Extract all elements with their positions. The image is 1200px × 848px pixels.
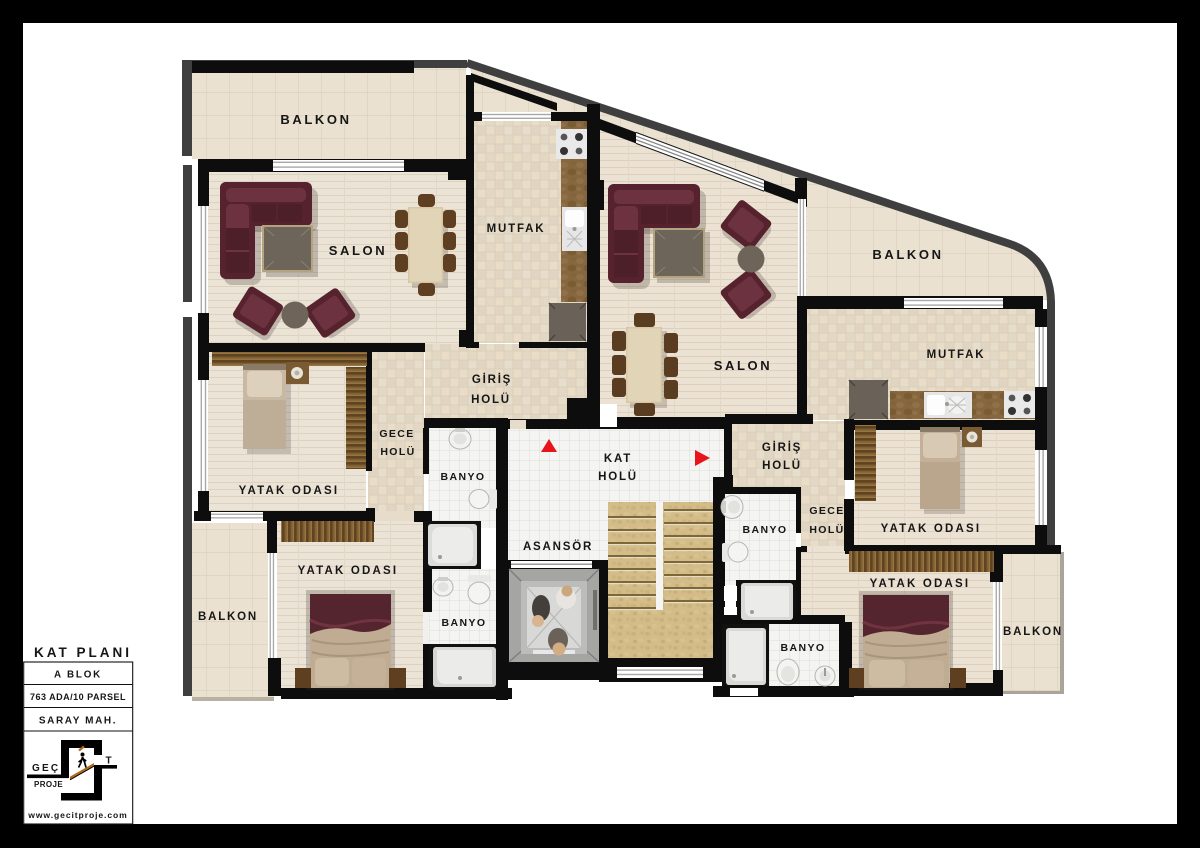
svg-text:BALKON: BALKON — [280, 112, 351, 127]
svg-text:BALKON: BALKON — [872, 247, 943, 262]
svg-text:KAT: KAT — [604, 453, 632, 465]
svg-text:GECE: GECE — [809, 505, 844, 517]
svg-text:GECE: GECE — [379, 428, 414, 440]
svg-text:SALON: SALON — [329, 243, 388, 258]
svg-text:GEÇ: GEÇ — [32, 763, 60, 774]
svg-text:BANYO: BANYO — [441, 471, 486, 483]
svg-text:HOLÜ: HOLÜ — [809, 523, 844, 536]
svg-text:HOLÜ: HOLÜ — [762, 459, 802, 472]
svg-text:YATAK ODASI: YATAK ODASI — [881, 523, 982, 535]
svg-text:GİRİŞ: GİRİŞ — [472, 373, 512, 386]
svg-text:YATAK ODASI: YATAK ODASI — [870, 578, 971, 590]
svg-text:GİRİŞ: GİRİŞ — [762, 441, 802, 454]
svg-text:A BLOK: A BLOK — [54, 670, 102, 681]
svg-text:MUTFAK: MUTFAK — [487, 223, 546, 235]
svg-text:YATAK ODASI: YATAK ODASI — [239, 485, 340, 497]
svg-text:SALON: SALON — [714, 358, 773, 373]
svg-text:PROJE: PROJE — [34, 780, 63, 789]
svg-text:BALKON: BALKON — [1003, 626, 1063, 638]
svg-text:763 ADA/10 PARSEL: 763 ADA/10 PARSEL — [30, 692, 126, 702]
svg-text:BALKON: BALKON — [198, 611, 258, 623]
svg-text:T: T — [106, 756, 112, 767]
svg-text:www.gecitproje.com: www.gecitproje.com — [27, 810, 127, 820]
svg-text:BANYO: BANYO — [442, 617, 487, 629]
svg-text:HOLÜ: HOLÜ — [380, 445, 415, 458]
svg-text:ASANSÖR: ASANSÖR — [523, 540, 593, 553]
svg-text:YATAK ODASI: YATAK ODASI — [298, 565, 399, 577]
svg-text:MUTFAK: MUTFAK — [927, 349, 986, 361]
svg-text:HOLÜ: HOLÜ — [471, 393, 511, 406]
svg-text:BANYO: BANYO — [781, 642, 826, 654]
svg-text:SARAY MAH.: SARAY MAH. — [39, 716, 117, 727]
svg-text:HOLÜ: HOLÜ — [598, 470, 638, 483]
svg-text:KAT PLANI: KAT PLANI — [34, 645, 132, 660]
svg-text:BANYO: BANYO — [743, 524, 788, 536]
